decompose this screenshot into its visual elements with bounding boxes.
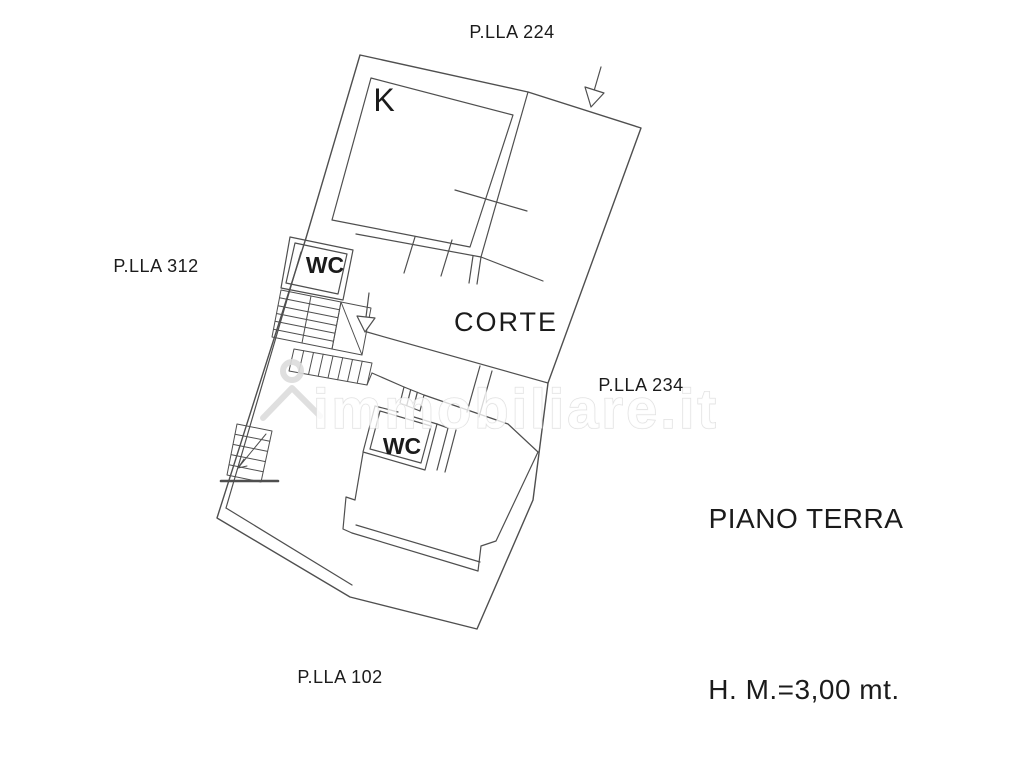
label-parcel-234: P.LLA 234	[598, 375, 683, 395]
floorplan-drawing: immobiliare.it P.LLA 224 P.LLA 312 P.LLA…	[0, 0, 1024, 768]
label-floor-title: PIANO TERRA	[709, 503, 904, 534]
kitchen-room	[332, 78, 543, 284]
wall-tick-marks	[404, 237, 452, 276]
label-wc-upper: WC	[306, 252, 344, 278]
label-height-note: H. M.=3,00 mt.	[708, 674, 899, 705]
terrace-staircase	[227, 424, 272, 482]
staircase-upper	[272, 290, 372, 385]
entrance-arrow-middle	[357, 293, 375, 332]
label-parcel-312: P.LLA 312	[113, 256, 198, 276]
entrance-arrow-top	[585, 67, 604, 107]
plan-labels: P.LLA 224 P.LLA 312 P.LLA 234 P.LLA 102 …	[113, 22, 903, 705]
plan-linework	[217, 55, 641, 629]
window-sill-line	[455, 190, 527, 211]
watermark-logo-icon	[263, 362, 320, 418]
label-parcel-102: P.LLA 102	[297, 667, 382, 687]
label-kitchen: K	[373, 82, 394, 118]
parcel-boundary	[217, 55, 641, 629]
floorplan-page: immobiliare.it P.LLA 224 P.LLA 312 P.LLA…	[0, 0, 1024, 768]
label-wc-lower: WC	[383, 433, 421, 459]
label-courtyard: CORTE	[454, 307, 558, 337]
label-parcel-224: P.LLA 224	[469, 22, 554, 42]
